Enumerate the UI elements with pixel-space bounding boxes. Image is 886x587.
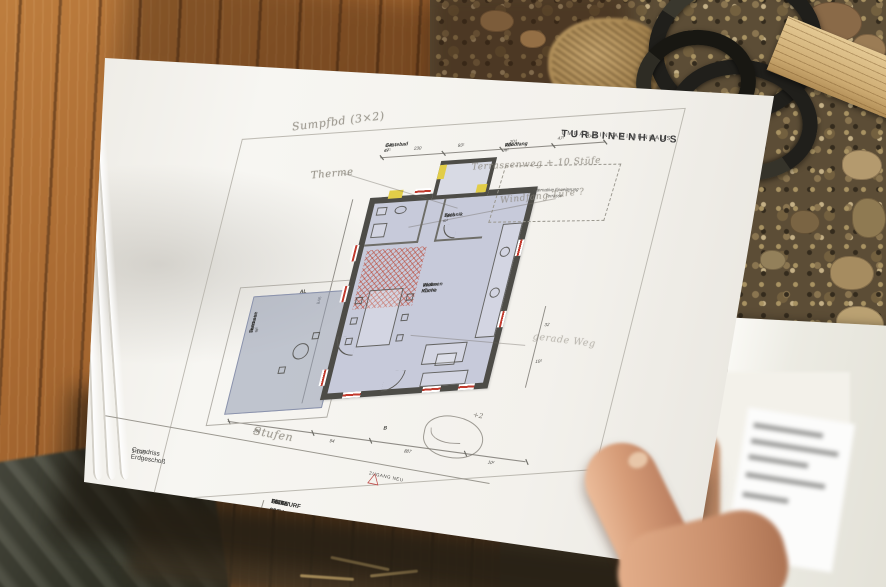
window-marker	[458, 383, 475, 390]
dim-label: 887	[403, 448, 412, 454]
dim-label: 230	[413, 145, 422, 151]
stone	[520, 30, 546, 48]
pencil-scribble	[430, 427, 460, 444]
window-marker	[414, 188, 431, 195]
stone	[480, 10, 514, 32]
stone	[830, 256, 874, 290]
dim-label: 104²	[585, 133, 595, 139]
dim-label: 10²	[535, 358, 543, 364]
stone	[760, 250, 786, 270]
photo-scene: TURBINENHAUS UMBAU EINFAMILIENHAUS 47¹ 2…	[0, 0, 886, 587]
stone	[842, 150, 882, 180]
stone	[852, 198, 886, 238]
dim-label: 47¹	[557, 135, 565, 141]
dim-label: 93¹	[457, 142, 465, 148]
coffee-table	[434, 352, 457, 366]
sketch-label: +2	[472, 411, 484, 421]
stone	[790, 210, 820, 234]
